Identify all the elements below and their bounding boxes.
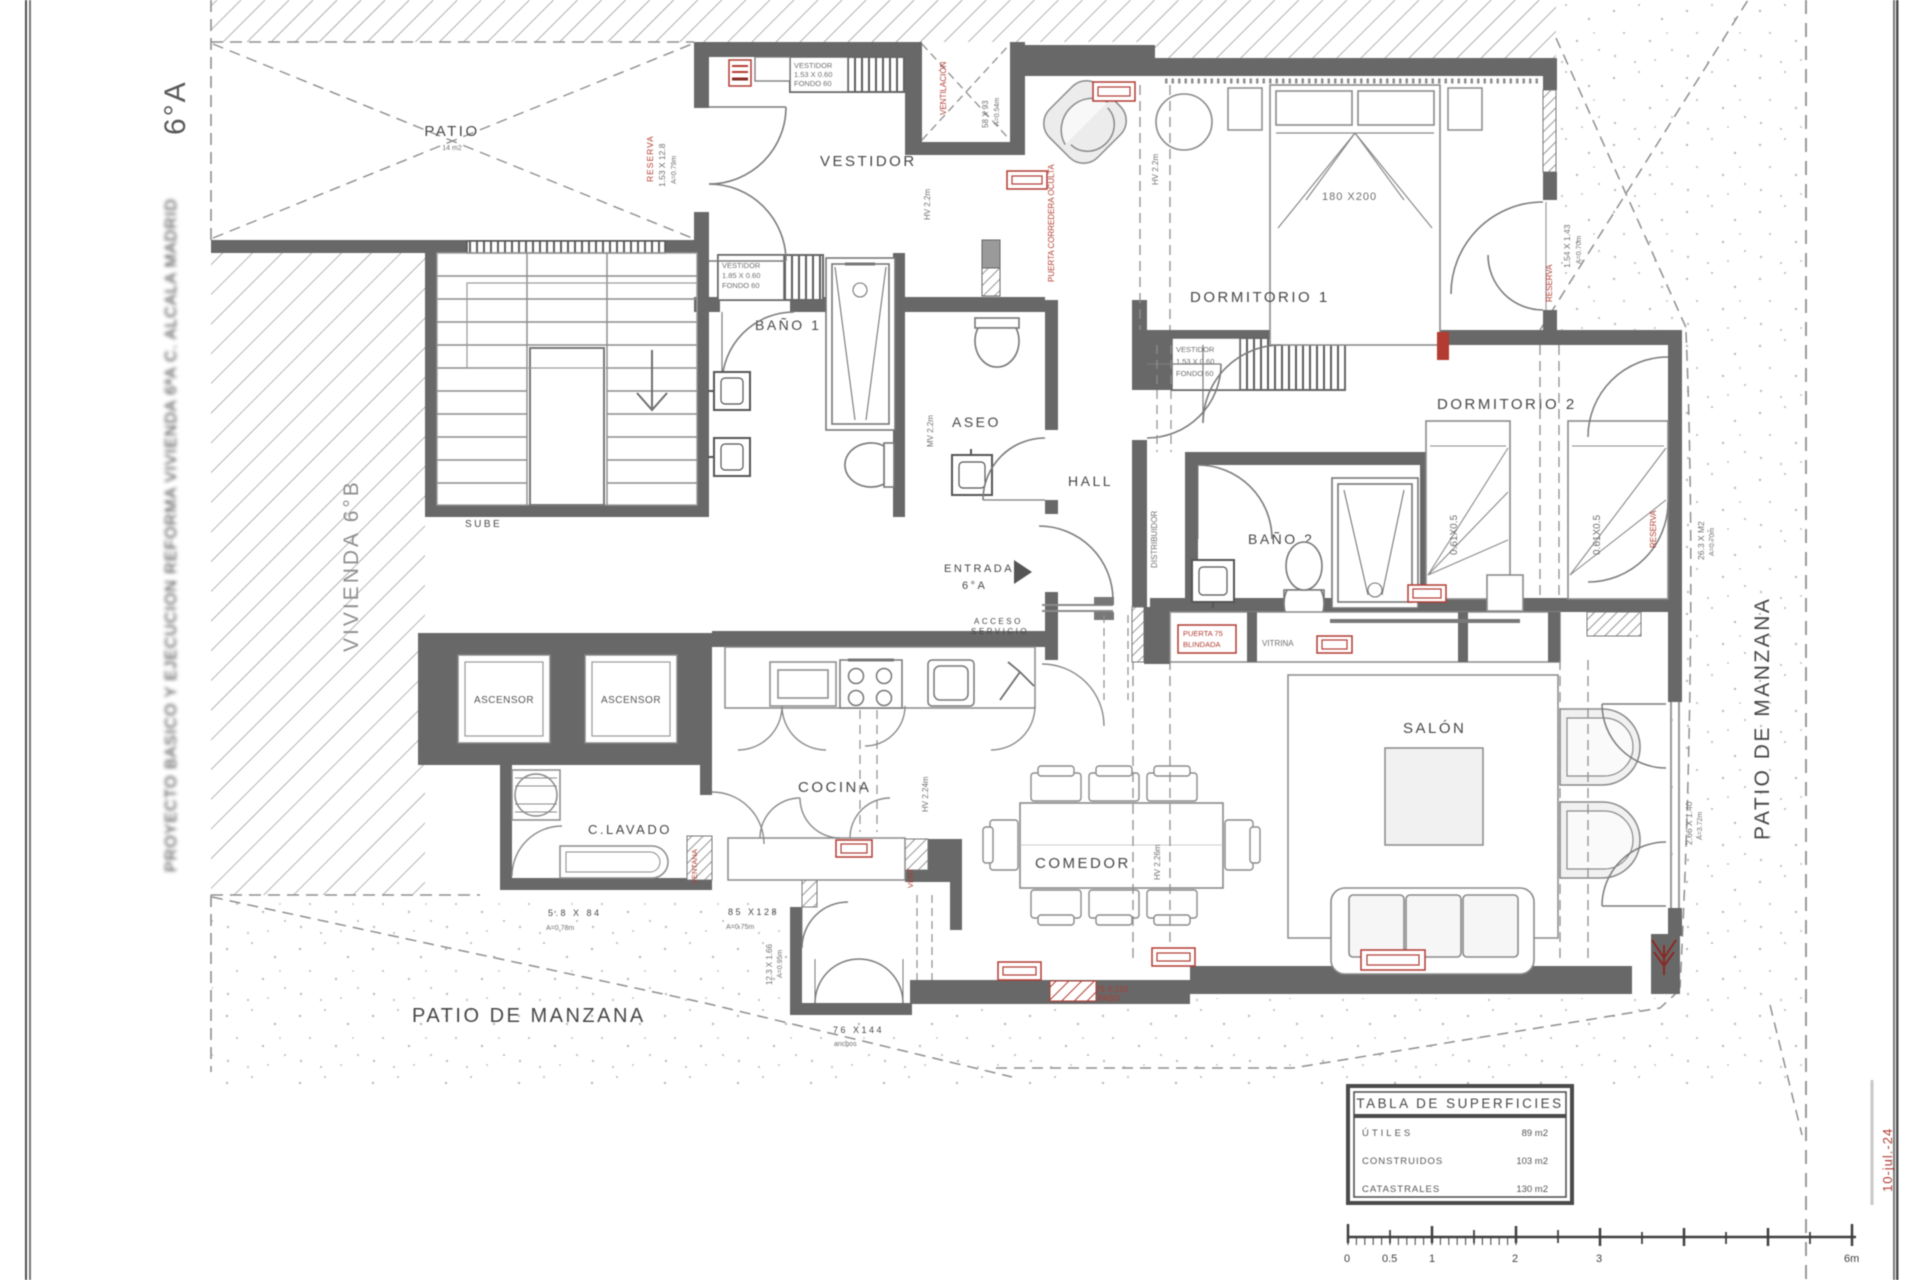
- svg-text:3: 3: [1596, 1253, 1602, 1265]
- svg-text:130 m2: 130 m2: [1516, 1184, 1548, 1195]
- svg-text:TABLA DE SUPERFICIES: TABLA DE SUPERFICIES: [1356, 1096, 1563, 1111]
- svg-text:VENT: VENT: [906, 868, 915, 888]
- svg-text:ASCENSOR: ASCENSOR: [601, 695, 661, 706]
- svg-text:A=0.70m: A=0.70m: [1709, 528, 1716, 556]
- svg-text:1.53 X 12.8: 1.53 X 12.8: [657, 143, 667, 187]
- svg-text:A=0.54m: A=0.54m: [994, 98, 1001, 126]
- svg-text:VESTIDOR: VESTIDOR: [794, 61, 833, 70]
- svg-text:A=0.78m: A=0.78m: [546, 925, 574, 932]
- svg-text:6°A: 6°A: [159, 80, 192, 135]
- svg-text:COMEDOR: COMEDOR: [1035, 855, 1131, 872]
- svg-text:0.61X0.5: 0.61X0.5: [1592, 515, 1603, 555]
- svg-text:DORMITORIO 2: DORMITORIO 2: [1437, 396, 1577, 413]
- svg-text:10-jul.-24: 10-jul.-24: [1880, 1128, 1895, 1192]
- svg-text:PATIO: PATIO: [424, 123, 479, 140]
- svg-text:HALL: HALL: [1068, 473, 1113, 489]
- svg-text:0: 0: [1344, 1253, 1350, 1265]
- svg-text:PUERTA 75: PUERTA 75: [1183, 629, 1223, 638]
- svg-text:2: 2: [1512, 1253, 1518, 1265]
- svg-text:1.54 X 1.43: 1.54 X 1.43: [1562, 224, 1572, 268]
- svg-text:14 m2: 14 m2: [442, 145, 462, 152]
- svg-text:VESTIDOR: VESTIDOR: [722, 261, 761, 270]
- svg-text:BAÑO 1: BAÑO 1: [755, 317, 821, 333]
- svg-text:PATIO DE MANZANA: PATIO DE MANZANA: [1751, 597, 1774, 840]
- svg-text:85 X128: 85 X128: [728, 907, 779, 917]
- svg-text:PATIO DE MANZANA: PATIO DE MANZANA: [412, 1005, 646, 1027]
- svg-text:DORMITORIO 1: DORMITORIO 1: [1190, 289, 1330, 306]
- svg-text:HV 2.24m: HV 2.24m: [921, 776, 930, 812]
- svg-text:89 m2: 89 m2: [1522, 1128, 1548, 1139]
- svg-text:180 X200: 180 X200: [1322, 191, 1377, 203]
- svg-text:RESERVA: RESERVA: [1545, 264, 1554, 302]
- svg-text:FONDO 60: FONDO 60: [1176, 369, 1214, 378]
- svg-text:2.66 X 1.40: 2.66 X 1.40: [1684, 801, 1694, 845]
- svg-text:HV 2.26m: HV 2.26m: [1153, 844, 1162, 880]
- svg-text:DISTRIBUIDOR: DISTRIBUIDOR: [1150, 510, 1159, 568]
- svg-text:103 m2: 103 m2: [1516, 1156, 1548, 1167]
- svg-text:VESTIDOR: VESTIDOR: [1176, 345, 1215, 354]
- svg-text:1.53 X 0.60: 1.53 X 0.60: [794, 70, 832, 79]
- svg-text:A=0.95m: A=0.95m: [777, 950, 784, 978]
- svg-text:1.53 X 0.60: 1.53 X 0.60: [1176, 357, 1214, 366]
- svg-text:VENTILACIÓN: VENTILACIÓN: [939, 61, 948, 115]
- svg-text:SALÓN: SALÓN: [1403, 720, 1466, 737]
- svg-text:HV 2.2m: HV 2.2m: [1151, 154, 1160, 185]
- svg-text:CONSTRUIDOS: CONSTRUIDOS: [1362, 1156, 1443, 1167]
- svg-text:ENTRADA: ENTRADA: [944, 563, 1014, 575]
- svg-text:ASCENSOR: ASCENSOR: [474, 695, 534, 706]
- svg-text:VIVIENDA 6°B: VIVIENDA 6°B: [340, 479, 363, 652]
- svg-text:VITRINA: VITRINA: [1262, 639, 1294, 648]
- svg-text:26.3 X M2: 26.3 X M2: [1696, 521, 1706, 560]
- svg-text:0.61X0.5: 0.61X0.5: [1449, 515, 1460, 555]
- svg-text:FONDO 60: FONDO 60: [794, 79, 832, 88]
- svg-text:anchos: anchos: [834, 1041, 857, 1048]
- svg-text:6°A: 6°A: [962, 580, 987, 592]
- svg-text:1.85 X 0.60: 1.85 X 0.60: [722, 271, 760, 280]
- svg-text:ÚTILES: ÚTILES: [1362, 1128, 1413, 1139]
- svg-text:RESERVA: RESERVA: [645, 135, 655, 182]
- svg-text:MV 2.2m: MV 2.2m: [926, 415, 935, 447]
- svg-text:12.3 X 1.66: 12.3 X 1.66: [765, 944, 774, 985]
- svg-text:1: 1: [1429, 1253, 1435, 1265]
- svg-text:CATASTRALES: CATASTRALES: [1362, 1184, 1440, 1195]
- svg-text:75 X 210: 75 X 210: [1096, 985, 1129, 994]
- svg-text:HV 2.2m: HV 2.2m: [923, 189, 932, 220]
- svg-text:C.LAVADO: C.LAVADO: [588, 822, 672, 837]
- svg-text:A=0.79m: A=0.79m: [671, 156, 678, 184]
- svg-text:76 X144: 76 X144: [833, 1025, 884, 1035]
- svg-text:PROYECTO BASICO Y EJECUCION RE: PROYECTO BASICO Y EJECUCION REFORMA VIVI…: [163, 198, 180, 872]
- svg-text:A=0.75m: A=0.75m: [726, 924, 754, 931]
- svg-text:0.5: 0.5: [1382, 1253, 1397, 1265]
- svg-text:PUERTA CORREDERA OCULTA: PUERTA CORREDERA OCULTA: [1047, 164, 1056, 282]
- svg-text:ASEO: ASEO: [952, 414, 1001, 430]
- svg-text:SERVICIO: SERVICIO: [971, 627, 1029, 636]
- svg-text:A=3.72m: A=3.72m: [1697, 812, 1704, 840]
- svg-text:58 X 93: 58 X 93: [981, 100, 990, 128]
- svg-text:VENTANA: VENTANA: [690, 849, 699, 884]
- svg-text:VESTIDOR: VESTIDOR: [820, 153, 917, 170]
- svg-text:FONDO 60: FONDO 60: [722, 281, 760, 290]
- svg-text:PASO: PASO: [1098, 994, 1120, 1003]
- svg-text:5.8 X 84: 5.8 X 84: [548, 908, 602, 918]
- svg-text:BLINDADA: BLINDADA: [1183, 640, 1221, 649]
- svg-text:ACCESO: ACCESO: [974, 617, 1023, 626]
- svg-text:SUBE: SUBE: [465, 519, 502, 530]
- svg-text:6m: 6m: [1844, 1253, 1859, 1265]
- svg-text:A=0.70m: A=0.70m: [1576, 236, 1583, 264]
- svg-text:RESERVA: RESERVA: [1649, 510, 1658, 548]
